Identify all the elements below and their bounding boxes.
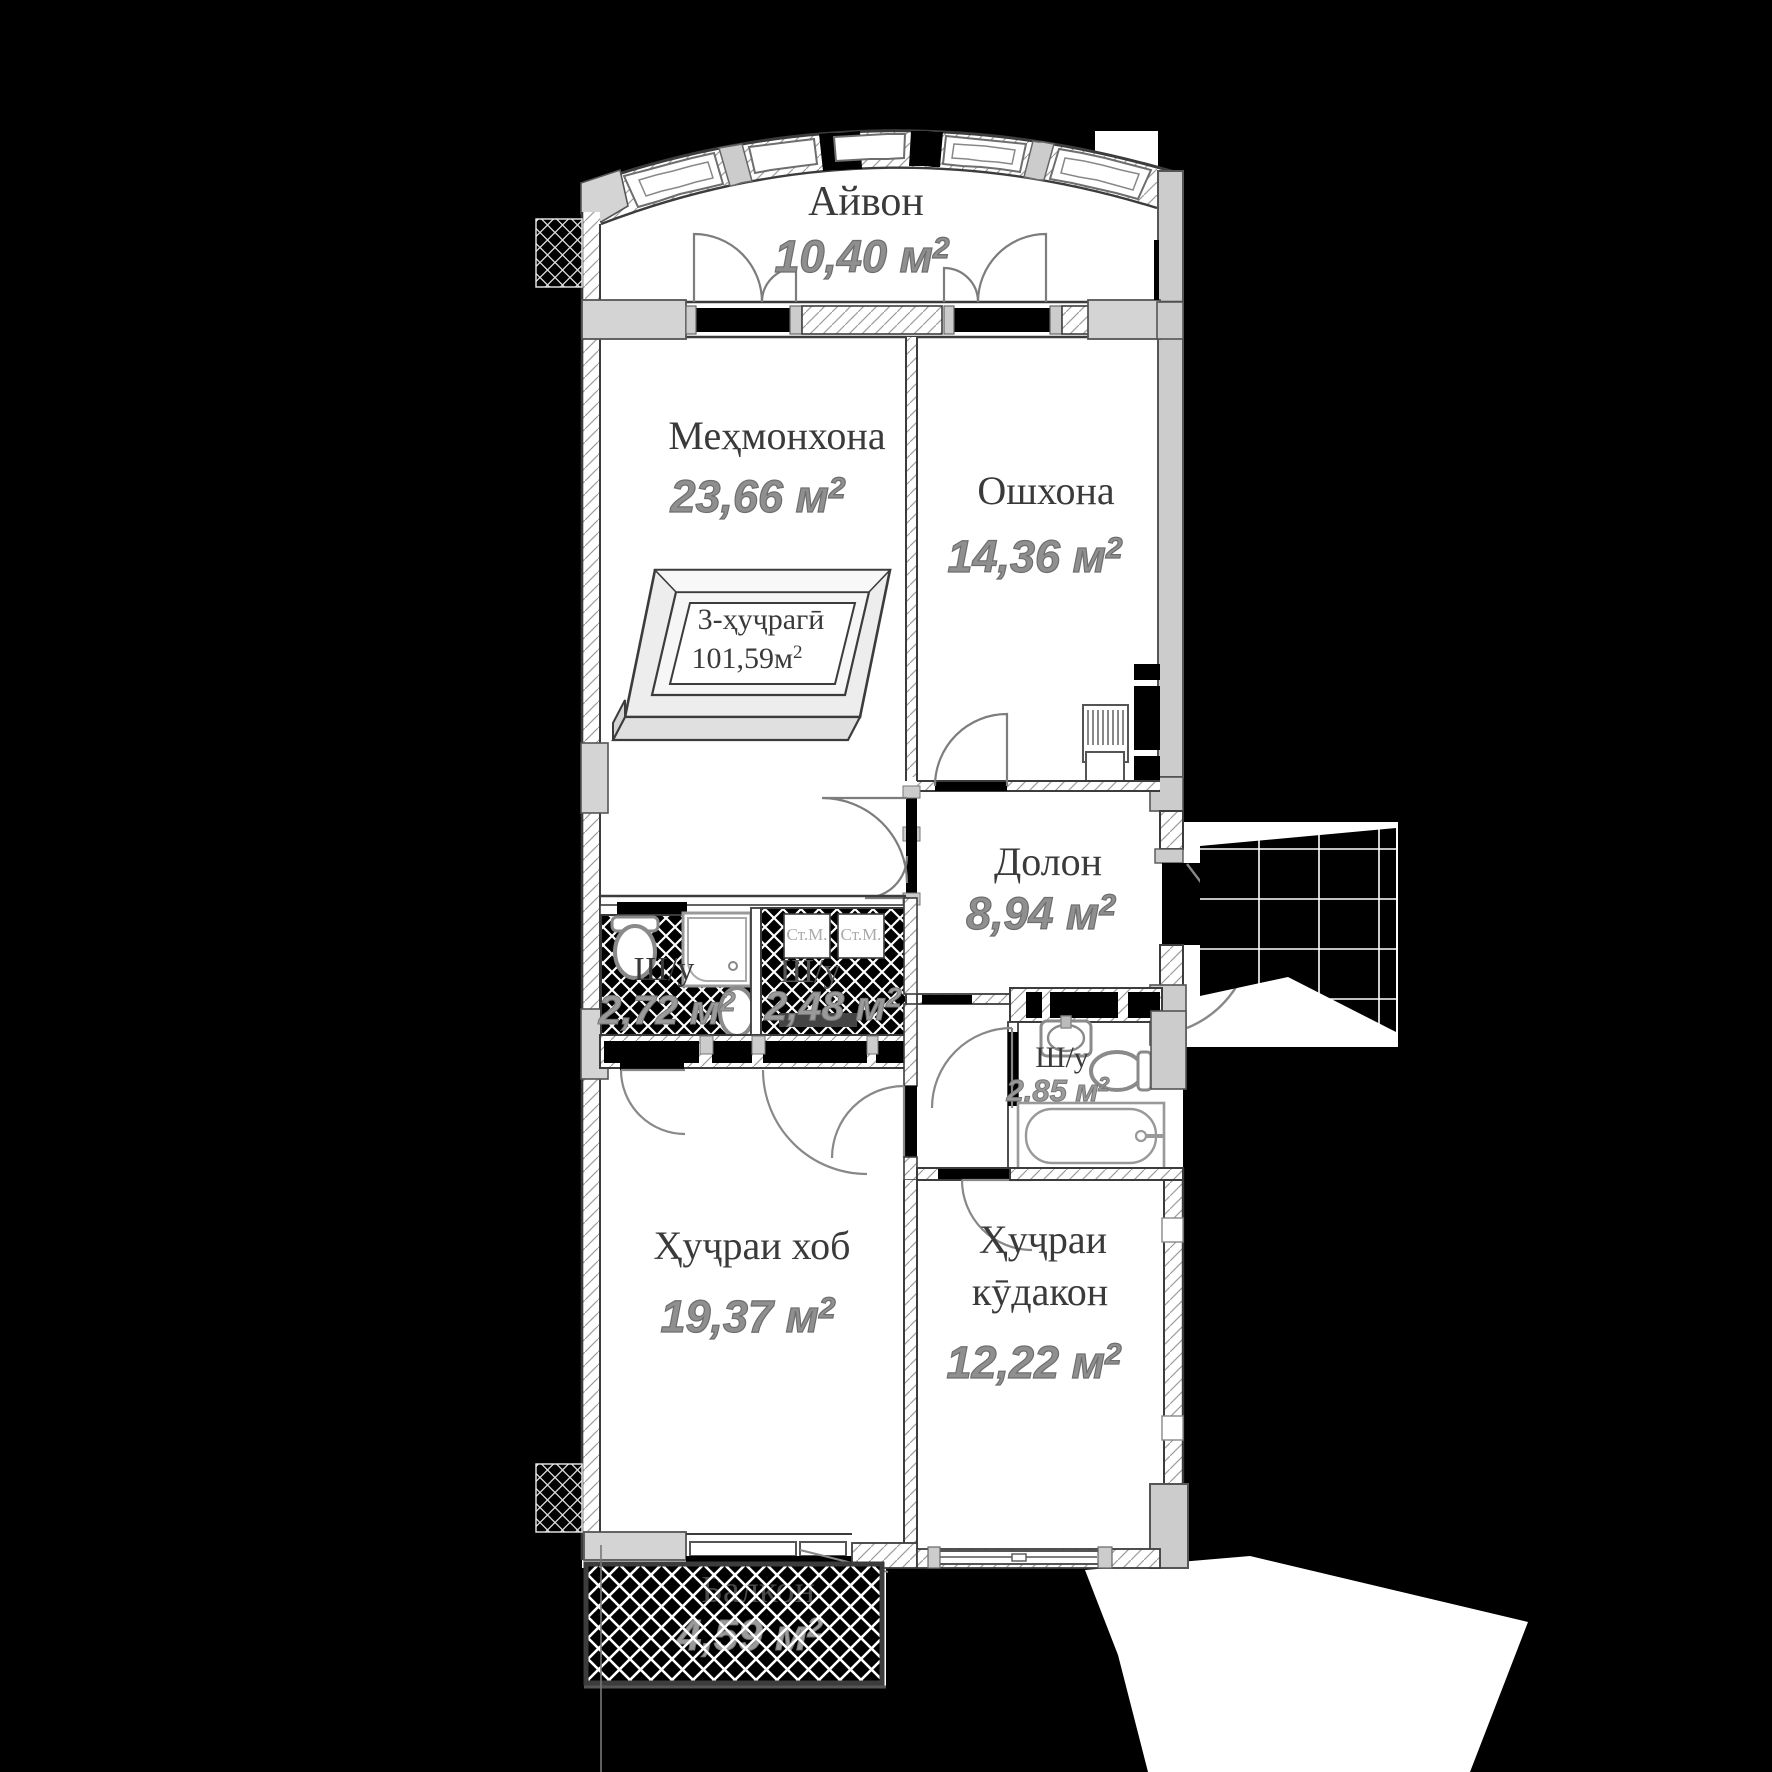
svg-text:кӯдакон: кӯдакон xyxy=(972,1269,1108,1314)
svg-text:Ст.М.: Ст.М. xyxy=(841,925,882,944)
svg-text:2,48 м2: 2,48 м2 xyxy=(763,982,902,1029)
svg-text:Долон: Долон xyxy=(994,839,1102,884)
svg-text:Айвон: Айвон xyxy=(808,179,924,225)
svg-text:2,72 м2: 2,72 м2 xyxy=(597,986,736,1033)
svg-text:Ш/у: Ш/у xyxy=(1035,1041,1089,1074)
svg-text:10,40 м2: 10,40 м2 xyxy=(774,231,949,282)
svg-text:Ошхона: Ошхона xyxy=(977,468,1115,513)
svg-text:Ст.М.: Ст.М. xyxy=(787,925,828,944)
svg-text:14,36 м2: 14,36 м2 xyxy=(947,531,1122,582)
svg-text:Меҳмонхона: Меҳмонхона xyxy=(668,413,885,458)
svg-text:101,59м2: 101,59м2 xyxy=(692,642,803,675)
svg-text:12,22 м2: 12,22 м2 xyxy=(946,1337,1121,1388)
svg-text:Ҳуҷраи хоб: Ҳуҷраи хоб xyxy=(654,1223,851,1268)
svg-text:23,66 м2: 23,66 м2 xyxy=(669,471,845,522)
svg-text:Ҳуҷраи: Ҳуҷраи xyxy=(979,1217,1107,1262)
svg-text:Ш/у: Ш/у xyxy=(634,951,695,988)
svg-text:19,37 м2: 19,37 м2 xyxy=(660,1291,835,1342)
svg-text:8,94 м2: 8,94 м2 xyxy=(966,888,1116,939)
svg-text:3-ҳуҷрагӣ: 3-ҳуҷрагӣ xyxy=(698,603,825,636)
